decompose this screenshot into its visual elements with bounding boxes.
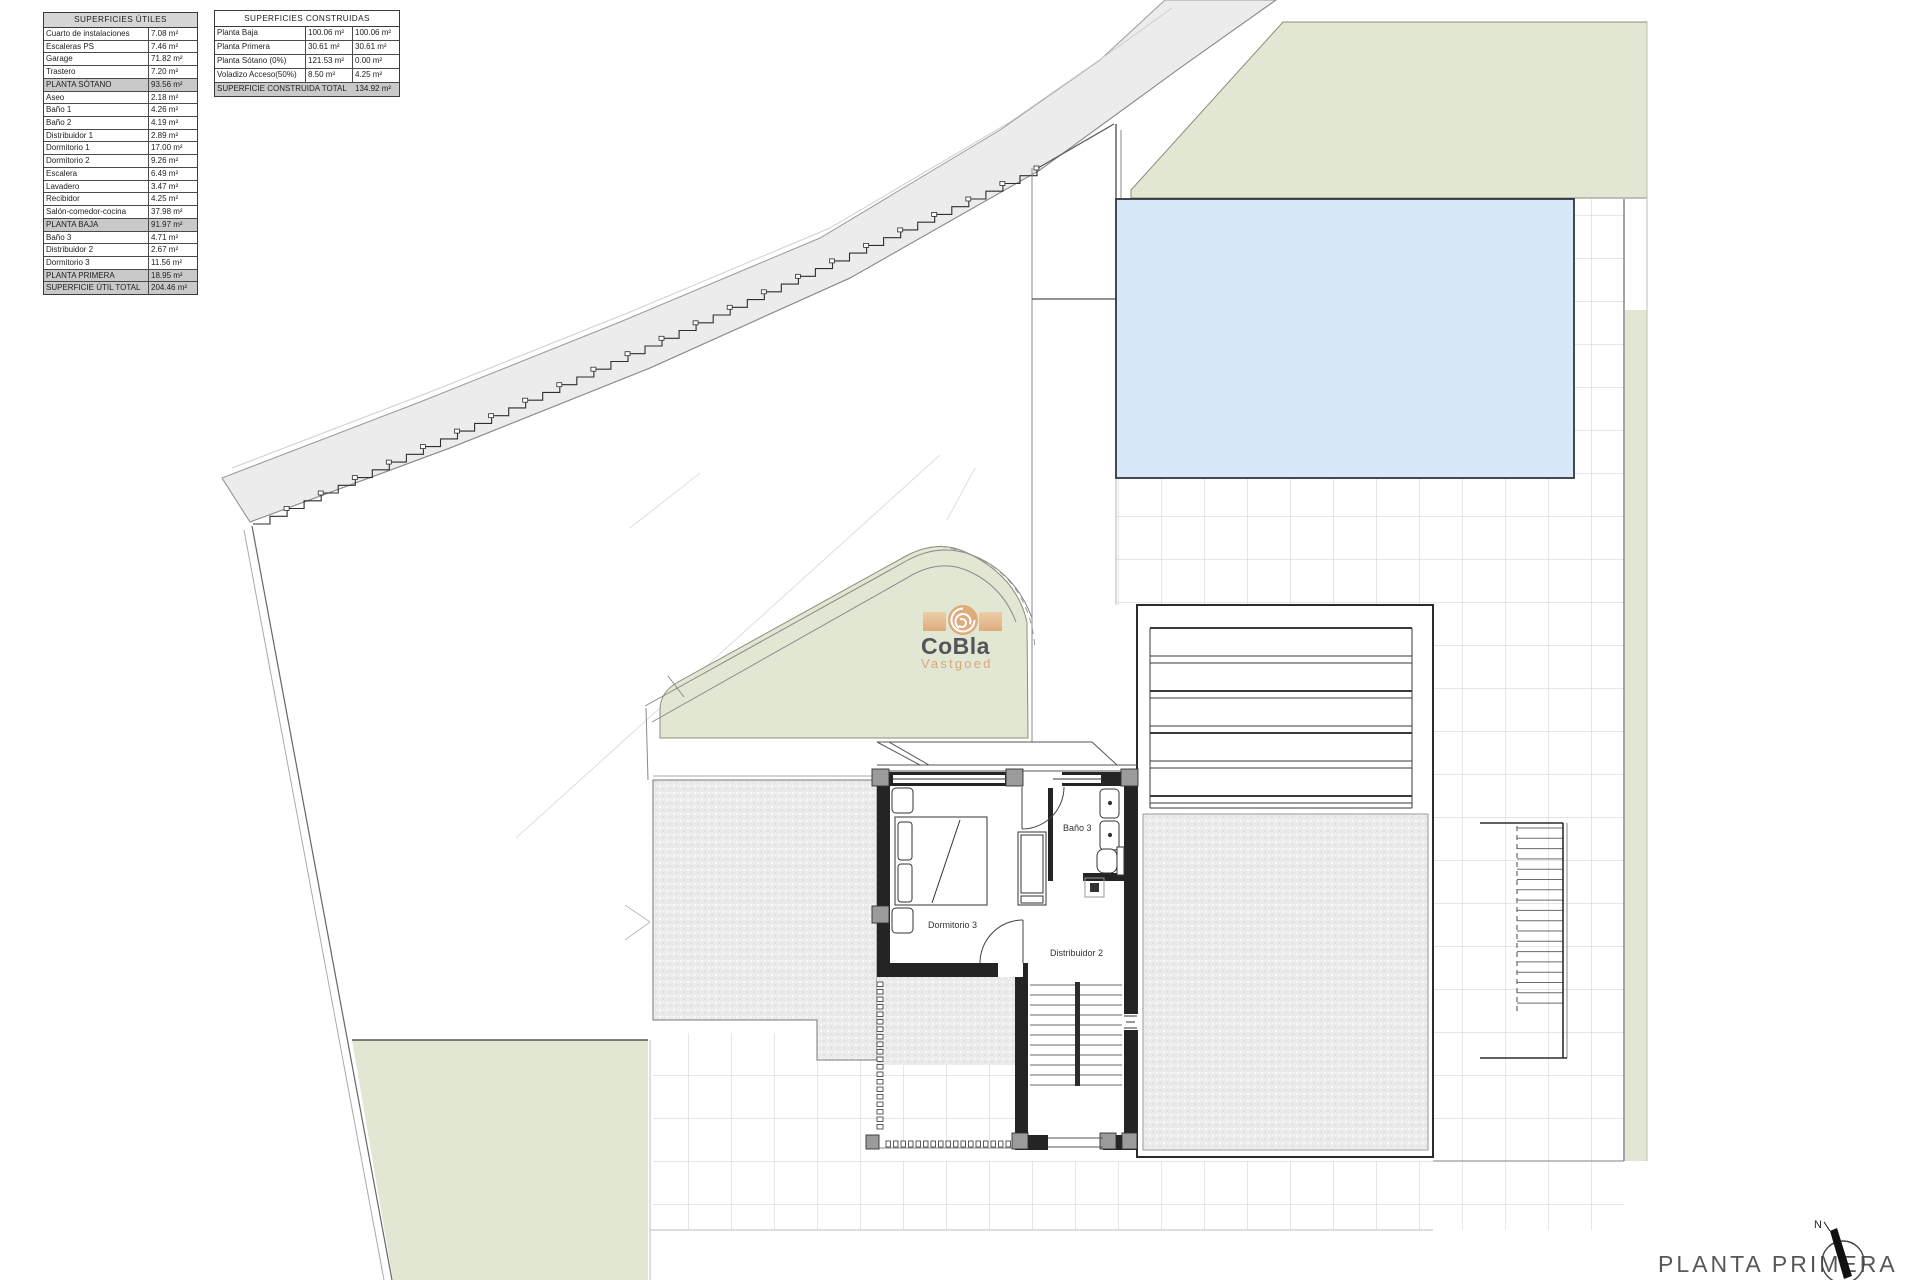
plan-title: PLANTA PRIMERA bbox=[1658, 1251, 1898, 1277]
table-row: Baño 24.19 m² bbox=[44, 116, 197, 129]
pergola-louvers bbox=[1150, 628, 1412, 808]
table-row: PLANTA BAJA91.97 m² bbox=[44, 218, 197, 231]
garden-bottom-left bbox=[352, 1040, 648, 1280]
bed bbox=[892, 788, 987, 933]
table-row: Escalera6.49 m² bbox=[44, 167, 197, 180]
toilet bbox=[1097, 849, 1117, 873]
table-row: Planta Baja100.06 m²100.06 m² bbox=[215, 27, 399, 40]
table-row: Baño 34.71 m² bbox=[44, 231, 197, 244]
title-block: PLANTA PRIMERA N bbox=[1658, 1219, 1898, 1280]
table-row: Planta Sótano (0%)121.53 m²0.00 m² bbox=[215, 54, 399, 68]
table-row: Dormitorio 117.00 m² bbox=[44, 141, 197, 154]
table-row: Planta Primera30.61 m²30.61 m² bbox=[215, 40, 399, 54]
cobla-logo-mark bbox=[921, 605, 1007, 635]
nightstand bbox=[892, 908, 913, 933]
table-row: Dormitorio 29.26 m² bbox=[44, 154, 197, 167]
garden-right-strip bbox=[1625, 310, 1647, 1161]
swimming-pool bbox=[1116, 199, 1574, 478]
threshold bbox=[1048, 1138, 1103, 1147]
table-superficies-utiles: SUPERFICIES ÚTILES Cuarto de instalacion… bbox=[43, 12, 198, 295]
table-row: PLANTA SÓTANO93.56 m² bbox=[44, 78, 197, 91]
label-bedroom: Dormitorio 3 bbox=[928, 920, 977, 930]
table-row: Aseo2.18 m² bbox=[44, 91, 197, 104]
table-row: Dormitorio 311.56 m² bbox=[44, 256, 197, 269]
table-superficies-construidas: SUPERFICIES CONSTRUIDAS Planta Baja100.0… bbox=[214, 10, 400, 97]
interior-stairs bbox=[1030, 982, 1122, 1086]
table-title: SUPERFICIES CONSTRUIDAS bbox=[215, 11, 399, 27]
table-row: SUPERFICIE ÚTIL TOTAL204.46 m² bbox=[44, 281, 197, 294]
table-row: Baño 14.26 m² bbox=[44, 103, 197, 116]
table-row: Escaleras PS7.46 m² bbox=[44, 40, 197, 53]
label-bath: Baño 3 bbox=[1063, 823, 1092, 833]
roof-below-right bbox=[1143, 814, 1428, 1150]
label-hall: Distribuidor 2 bbox=[1050, 948, 1103, 958]
table-row: Recibidor4.25 m² bbox=[44, 192, 197, 205]
roof-below-left bbox=[653, 776, 877, 1060]
cobla-logo-sub: Vastgoed bbox=[921, 657, 1007, 671]
table-total-row: SUPERFICIE CONSTRUIDA TOTAL134.92 m² bbox=[215, 82, 399, 96]
table-row: Lavadero3.47 m² bbox=[44, 180, 197, 193]
table-title: SUPERFICIES ÚTILES bbox=[44, 13, 197, 28]
cobla-logo-name: CoBla bbox=[921, 635, 1007, 657]
table-row: Garage71.82 m² bbox=[44, 52, 197, 65]
north-label: N bbox=[1814, 1219, 1822, 1231]
table-row: PLANTA PRIMERA18.95 m² bbox=[44, 269, 197, 282]
wardrobe bbox=[1018, 832, 1046, 905]
table-row: Trastero7.20 m² bbox=[44, 65, 197, 78]
floorplan-sheet: Baño 3 Dormitorio 3 Distribuidor 2 PLANT… bbox=[0, 0, 1920, 1280]
table-row: Voladizo Acceso(50%)8.50 m²4.25 m² bbox=[215, 68, 399, 82]
table-row: Salón-comedor-cocina37.98 m² bbox=[44, 205, 197, 218]
table-row: Cuarto de instalaciones7.08 m² bbox=[44, 28, 197, 40]
nightstand bbox=[892, 788, 913, 813]
cistern bbox=[1117, 847, 1124, 875]
cobla-logo: CoBla Vastgoed bbox=[921, 605, 1007, 679]
table-row: Distribuidor 12.89 m² bbox=[44, 129, 197, 142]
pergola-terrace bbox=[1137, 605, 1433, 1157]
walkway-lines bbox=[1032, 124, 1121, 742]
cobla-swirl-icon bbox=[946, 603, 980, 637]
table-row: Distribuidor 22.67 m² bbox=[44, 243, 197, 256]
entrance-canopy bbox=[877, 742, 1137, 771]
